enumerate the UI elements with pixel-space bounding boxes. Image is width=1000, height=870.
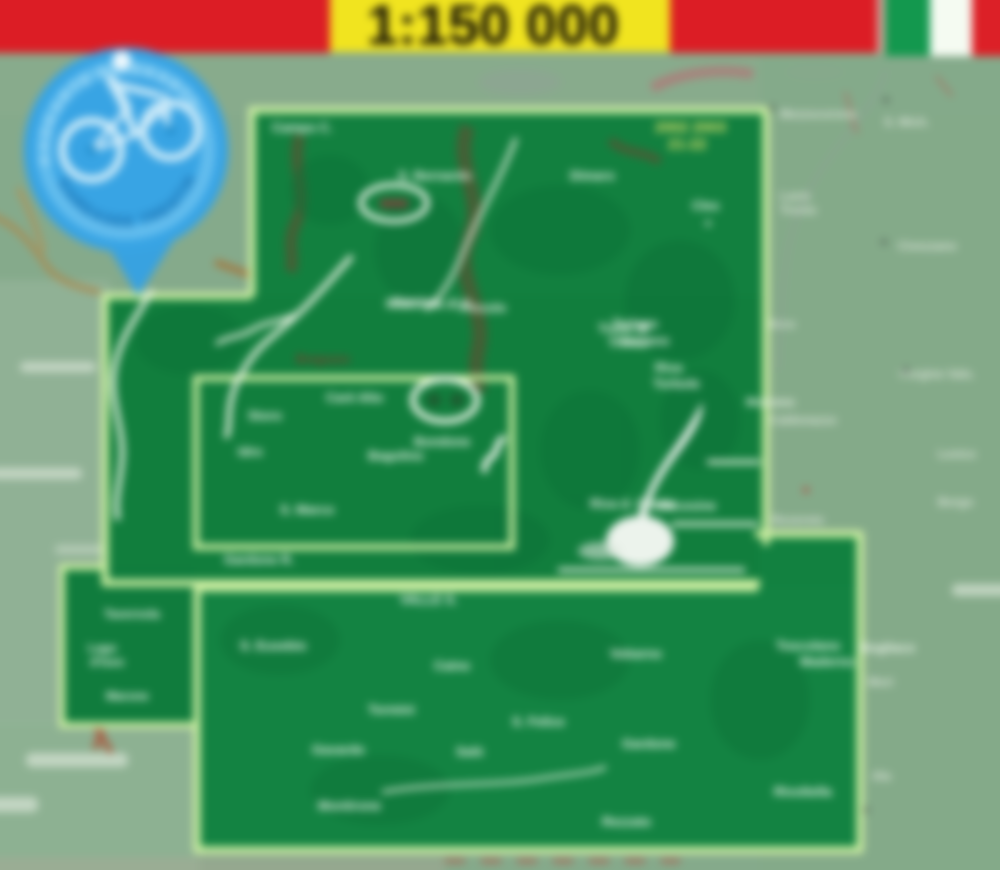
svg-text:Malcesine: Malcesine: [654, 498, 716, 513]
svg-text:Idro: Idro: [238, 444, 263, 459]
svg-text:Mori: Mori: [868, 675, 893, 689]
svg-text:S. Mich.: S. Mich.: [884, 115, 929, 129]
svg-text:S. Bernardo: S. Bernardo: [398, 168, 472, 183]
svg-text:Gardone R.: Gardone R.: [224, 552, 294, 567]
svg-text:Gardone: Gardone: [622, 736, 675, 751]
svg-text:Levico: Levico: [938, 447, 976, 461]
svg-text:Tavernola: Tavernola: [104, 607, 160, 621]
svg-text:Breguzzo: Breguzzo: [296, 352, 350, 366]
svg-text:1:150 000: 1:150 000: [367, 0, 619, 56]
svg-text:Gavardo: Gavardo: [312, 742, 365, 757]
svg-text:Trento: Trento: [780, 203, 817, 217]
svg-text:S. Felice: S. Felice: [512, 714, 565, 729]
svg-text:VALLE S.: VALLE S.: [400, 592, 458, 607]
svg-text:Borgo: Borgo: [938, 495, 973, 509]
svg-text:Campo C.: Campo C.: [272, 120, 333, 135]
svg-text:Ala: Ala: [872, 769, 891, 783]
svg-text:+: +: [704, 215, 712, 231]
svg-text:Arco: Arco: [768, 317, 795, 331]
svg-text:Maderno: Maderno: [800, 654, 854, 669]
svg-text:Bondone: Bondone: [414, 434, 470, 449]
svg-text:Stenico: Stenico: [392, 294, 439, 309]
svg-text:Rezzato: Rezzato: [602, 814, 651, 829]
svg-text:2002 2003: 2002 2003: [655, 119, 726, 136]
svg-text:S. Marco: S. Marco: [280, 502, 334, 517]
svg-text:Civezzano: Civezzano: [898, 239, 957, 253]
svg-text:Molveno: Molveno: [746, 395, 795, 409]
svg-text:21-22: 21-22: [668, 136, 706, 153]
svg-text:Cles: Cles: [692, 198, 719, 213]
svg-text:Bagolino: Bagolino: [368, 448, 424, 463]
svg-text:Salò: Salò: [456, 744, 484, 759]
svg-text:Caldonazzo: Caldonazzo: [770, 413, 837, 427]
svg-text:Pergine Vals.: Pergine Vals.: [900, 367, 975, 381]
svg-text:Bogliaco: Bogliaco: [860, 640, 915, 655]
svg-text:Mezzocorona: Mezzocorona: [780, 107, 856, 121]
svg-text:Lago: Lago: [88, 641, 117, 655]
svg-text:Torbole: Torbole: [653, 376, 700, 391]
svg-text:Dimaro: Dimaro: [570, 168, 615, 183]
svg-text:d'Iseo: d'Iseo: [90, 655, 124, 669]
svg-text:Rivoltella: Rivoltella: [774, 784, 833, 799]
svg-text:Toscolano: Toscolano: [776, 638, 840, 653]
svg-text:Riva: Riva: [655, 360, 683, 375]
svg-text:Vobarno: Vobarno: [610, 646, 662, 661]
svg-text:Marone: Marone: [106, 689, 149, 703]
svg-text:Storo: Storo: [248, 408, 282, 423]
svg-text:Tormini: Tormini: [368, 702, 415, 717]
svg-text:Lavis: Lavis: [780, 189, 811, 203]
svg-text:Vezzano: Vezzano: [618, 333, 669, 348]
svg-text:Terlago: Terlago: [612, 316, 658, 331]
svg-text:Montirone: Montirone: [318, 798, 381, 813]
svg-text:Pinzolo: Pinzolo: [460, 300, 506, 315]
svg-text:Caino: Caino: [434, 658, 470, 673]
svg-text:Caré Alto: Caré Alto: [326, 390, 383, 405]
svg-text:Rovereto: Rovereto: [772, 513, 824, 527]
svg-text:S. Eusebio: S. Eusebio: [240, 638, 307, 653]
